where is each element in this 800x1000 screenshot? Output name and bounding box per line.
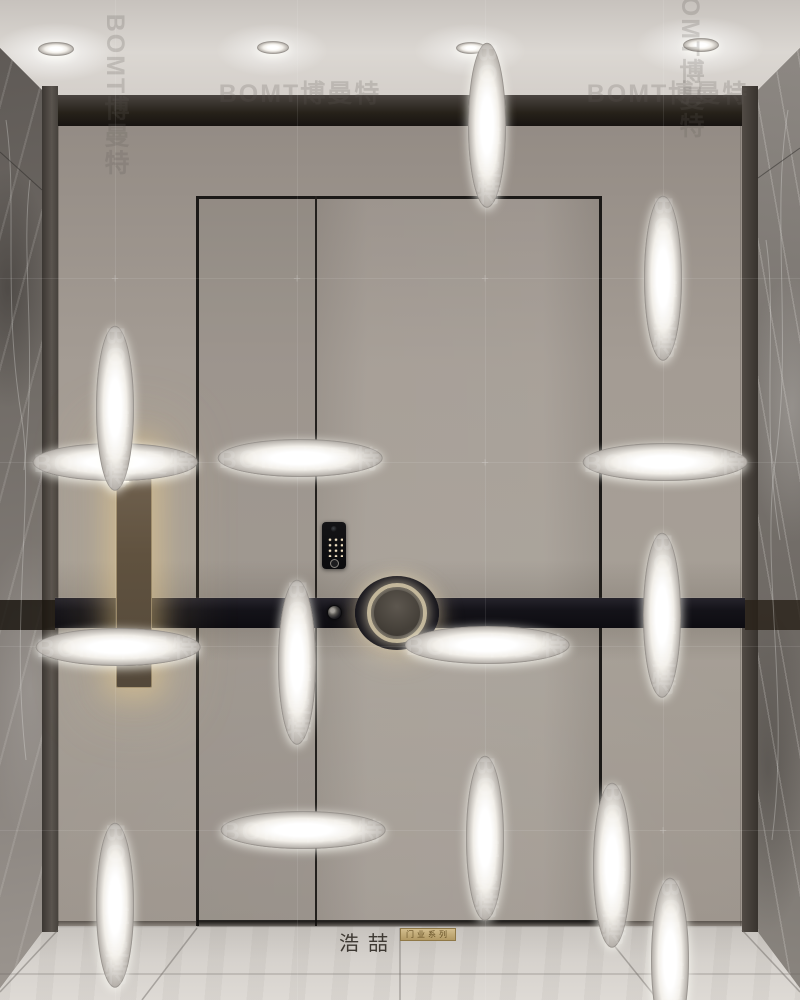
logo-series-badge: 门业系列 bbox=[400, 928, 456, 941]
doorbell-camera-icon bbox=[331, 526, 337, 532]
black-accent-band-left bbox=[0, 600, 55, 630]
right-marble-wall bbox=[758, 48, 800, 988]
door-frame-top bbox=[196, 196, 602, 199]
entry-door-scene: 302 ++++++++++++++++BOMT博曼特BOMT博曼特BOMT博曼… bbox=[0, 0, 800, 1000]
ceiling-downlight-icon bbox=[683, 38, 719, 52]
ceiling-wall-rail bbox=[26, 95, 774, 128]
keyhole bbox=[327, 605, 342, 620]
fingerprint-scanner-icon bbox=[330, 559, 339, 568]
ceiling-downlight-icon bbox=[456, 42, 486, 54]
black-accent-band-right bbox=[745, 600, 800, 630]
logo-title: 浩喆 bbox=[330, 927, 397, 956]
room-number-sign: 302 bbox=[116, 448, 152, 688]
left-corner-strip bbox=[42, 86, 58, 932]
wall-panel-seam bbox=[740, 126, 741, 930]
left-marble-wall bbox=[0, 48, 42, 988]
keypad-digits-icon bbox=[326, 536, 343, 557]
wall-panel-seam bbox=[58, 126, 59, 930]
ceiling-downlight-icon bbox=[38, 42, 74, 56]
door-handle-center bbox=[374, 590, 420, 636]
ceiling-downlight-icon bbox=[257, 41, 289, 54]
door-bottom-gap bbox=[197, 920, 603, 927]
right-corner-strip bbox=[742, 86, 758, 932]
smart-lock-keypad bbox=[322, 522, 346, 569]
